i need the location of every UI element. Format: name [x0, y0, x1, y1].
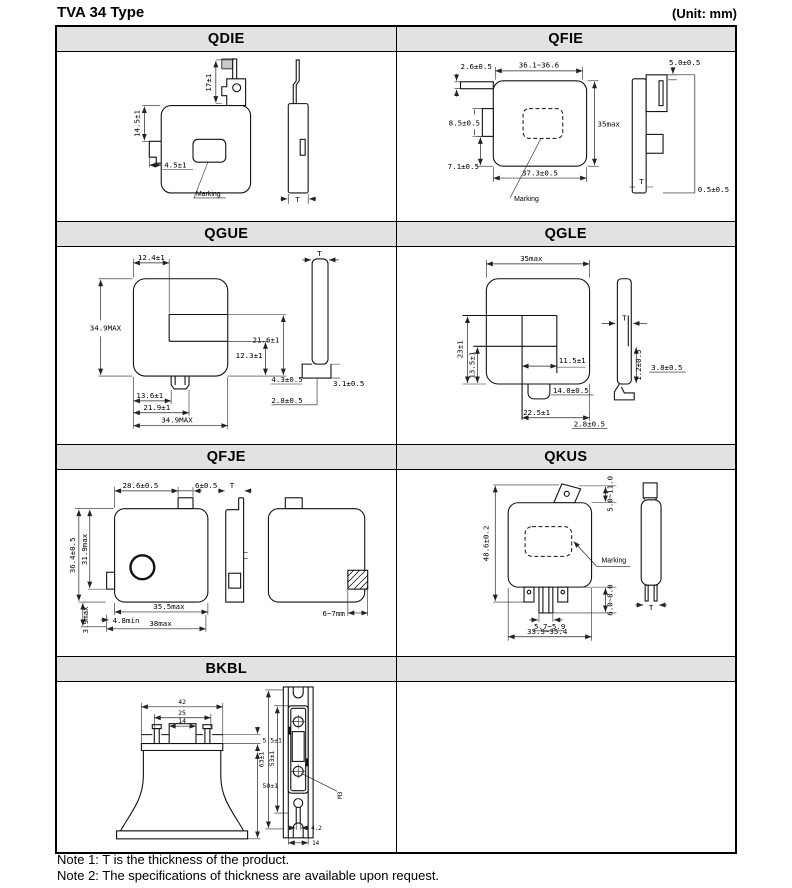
qgle-dim-115: 11.5±1 [558, 356, 585, 365]
qfie-dim-26: 2.6±0.5 [460, 62, 491, 71]
qfje-dim-48: 4.8min [113, 616, 140, 625]
bkbl-dim-14b: 14 [312, 840, 320, 847]
qfje-dim-38: 38max [149, 619, 172, 628]
bkbl-screw-label: M3 [337, 791, 344, 799]
qgle-front-view: 35max 23±1 13.5±1 11.5±1 14.0±0.5 22 [455, 254, 607, 429]
empty-cell [397, 682, 736, 852]
qfje-dim-39: 3.9max [81, 606, 90, 633]
header-empty [397, 657, 736, 681]
header-qfje: QFJE [57, 445, 397, 469]
qfie-dim-36: 36.1~36.6 [518, 60, 558, 69]
content-row-1: Marking 17±1 14.5±1 4.5±1 [57, 52, 735, 222]
qfje-dim-6: 6±0.5 [195, 481, 217, 490]
header-qgue: QGUE [57, 222, 397, 246]
qfje-thickness-label: T [230, 481, 235, 490]
qgue-front-view: 12.4±1 34.9MAX 21.6±1 12.3±1 13.6±1 [90, 253, 287, 429]
qgle-dim-28: 2.8±0.5 [573, 420, 604, 429]
qdie-front-view: Marking 17±1 14.5±1 4.5±1 [132, 59, 250, 198]
notes: Note 1: T is the thickness of the produc… [57, 852, 439, 884]
header-bkbl: BKBL [57, 657, 397, 681]
bkbl-dim-25: 25 [178, 709, 186, 717]
datasheet-page: TVA 34 Type (Unit: mm) QDIE QFIE [0, 0, 792, 888]
bkbl-side-view: 63±1 53±1 M3 4.2 14 [257, 687, 343, 847]
qgue-dim-124: 12.4±1 [138, 253, 165, 262]
qgle-cell: 35max 23±1 13.5±1 11.5±1 14.0±0.5 22 [397, 247, 736, 444]
qgle-side-view: T 1.2±0.5 3.8±0.5 [601, 279, 685, 400]
qfje-drawing: 28.6±0.5 6±0.5 36.4±0.5 31.9max 3.9max 4… [57, 470, 396, 656]
qgle-dim-225: 22.5±1 [523, 408, 550, 417]
qkus-drawing: Marking 48.6±0.2 5.0~11.0 6.0~8.0 5 [397, 470, 736, 656]
bkbl-dim-53: 53±1 [268, 751, 276, 767]
qgue-dim-43: 4.3±0.5 [271, 375, 302, 384]
qgue-cell: 12.4±1 34.9MAX 21.6±1 12.3±1 13.6±1 [57, 247, 397, 444]
qkus-front-view: Marking 48.6±0.2 5.0~11.0 6.0~8.0 5 [481, 476, 630, 641]
qdie-dim-145: 14.5±1 [132, 110, 141, 137]
qgue-dim-31: 3.1±0.5 [333, 379, 364, 388]
header-row-3: QFJE QKUS [57, 445, 735, 470]
qdie-side-view: T [280, 60, 316, 204]
qfje-side-view: T [218, 481, 252, 602]
note-1: Note 1: T is the thickness of the produc… [57, 852, 439, 868]
qfie-front-view: Marking 2.6±0.5 36.1~36.6 8.5±0.5 3 [447, 60, 620, 203]
content-row-3: 28.6±0.5 6±0.5 36.4±0.5 31.9max 3.9max 4… [57, 470, 735, 657]
qgle-thickness-label: T [622, 313, 627, 322]
qdie-marking-label: Marking [196, 191, 221, 198]
bkbl-dim-42: 42 [178, 698, 186, 706]
qfje-dim-355: 35.5max [153, 602, 185, 611]
qdie-thickness-label: T [295, 195, 300, 204]
qkus-side-view: T [635, 483, 667, 612]
header-row-4: BKBL [57, 657, 735, 682]
note-2: Note 2: The specifications of thickness … [57, 868, 439, 884]
qdie-dim-17: 17±1 [204, 74, 213, 92]
bkbl-drawing: 42 25 14 5.5±1 50±1 [57, 682, 396, 852]
qkus-dim-339: 33.9~35.4 [527, 627, 568, 636]
bkbl-dim-42b: 4.2 [311, 825, 322, 832]
qgle-dim-38: 3.8±0.5 [651, 363, 682, 372]
qgue-dim-123: 12.3±1 [236, 351, 263, 360]
header-qgle: QGLE [397, 222, 736, 246]
qfje-dim-319: 31.9max [80, 533, 89, 565]
header-qkus: QKUS [397, 445, 736, 469]
qkus-dim-486: 48.6±0.2 [481, 526, 490, 562]
bkbl-cell: 42 25 14 5.5±1 50±1 [57, 682, 397, 852]
qfje-cell: 28.6±0.5 6±0.5 36.4±0.5 31.9max 3.9max 4… [57, 470, 397, 656]
qgle-dim-12: 1.2±0.5 [634, 349, 643, 380]
qfie-dim-35: 35max [597, 119, 620, 128]
qdie-drawing: Marking 17±1 14.5±1 4.5±1 [57, 52, 396, 221]
qfje-front-view: 28.6±0.5 6±0.5 36.4±0.5 31.9max 3.9max 4… [68, 481, 218, 633]
page-title: TVA 34 Type [57, 4, 144, 21]
qgle-dim-35: 35max [520, 254, 543, 263]
qgue-dim-28: 2.8±0.5 [271, 396, 302, 405]
qfie-thickness-label: T [639, 177, 644, 186]
qkus-cell: Marking 48.6±0.2 5.0~11.0 6.0~8.0 5 [397, 470, 736, 656]
qgue-side-view: T 4.3±0.5 3.1±0.5 2.8±0.5 [270, 249, 364, 405]
qfie-drawing: Marking 2.6±0.5 36.1~36.6 8.5±0.5 3 [397, 52, 736, 221]
qkus-thickness-label: T [648, 603, 653, 612]
qfie-side-view: 5.0±0.5 T 0.5±0.5 [629, 58, 729, 194]
qgue-drawing: 12.4±1 34.9MAX 21.6±1 12.3±1 13.6±1 [57, 247, 396, 444]
qfie-marking-label: Marking [514, 196, 539, 203]
qkus-marking-label: Marking [601, 557, 626, 564]
qkus-dim-68: 6.0~8.0 [605, 584, 614, 615]
qgue-dim-349b: 34.9MAX [161, 416, 193, 425]
unit-label: (Unit: mm) [672, 6, 737, 21]
header-qfie: QFIE [397, 27, 736, 51]
qdie-dim-45: 4.5±1 [164, 161, 186, 170]
bkbl-dim-63: 63±1 [257, 752, 265, 768]
qgue-dim-216: 21.6±1 [253, 335, 280, 344]
qgle-dim-135: 13.5±1 [467, 352, 476, 379]
qfie-dim-85: 8.5±0.5 [448, 118, 479, 127]
qgue-dim-349l: 34.9MAX [90, 323, 122, 332]
qfje-dim-364: 36.4±0.5 [68, 537, 77, 573]
qfie-dim-373: 37.3±0.5 [522, 169, 558, 178]
qfje-back-view: 6~7mm [268, 498, 367, 618]
qgle-drawing: 35max 23±1 13.5±1 11.5±1 14.0±0.5 22 [397, 247, 736, 444]
qdie-cell: Marking 17±1 14.5±1 4.5±1 [57, 52, 397, 221]
qgle-dim-23: 23±1 [455, 340, 464, 358]
qfie-dim-71: 7.1±0.5 [447, 162, 478, 171]
qfje-dim-67: 6~7mm [322, 609, 345, 618]
qgue-dim-136: 13.6±1 [136, 391, 163, 400]
qgue-thickness-label: T [317, 249, 322, 258]
qfie-cell: Marking 2.6±0.5 36.1~36.6 8.5±0.5 3 [397, 52, 736, 221]
qfie-dim-50: 5.0±0.5 [668, 58, 699, 67]
qkus-dim-511: 5.0~11.0 [605, 476, 614, 512]
bkbl-front-view: 42 25 14 5.5±1 50±1 [117, 698, 282, 839]
qgue-dim-219: 21.9±1 [143, 403, 170, 412]
content-row-2: 12.4±1 34.9MAX 21.6±1 12.3±1 13.6±1 [57, 247, 735, 445]
bkbl-dim-14a: 14 [178, 717, 186, 725]
bkbl-dim-55: 5.5±1 [262, 737, 282, 745]
qfje-dim-286: 28.6±0.5 [123, 481, 159, 490]
header-row-2: QGUE QGLE [57, 222, 735, 247]
bkbl-dim-50: 50±1 [262, 782, 278, 790]
header-row-1: QDIE QFIE [57, 27, 735, 52]
drawing-table: QDIE QFIE Marking [55, 25, 737, 854]
header-qdie: QDIE [57, 27, 397, 51]
qfie-dim-05: 0.5±0.5 [697, 185, 728, 194]
content-row-4: 42 25 14 5.5±1 50±1 [57, 682, 735, 852]
qgle-dim-140: 14.0±0.5 [552, 386, 588, 395]
